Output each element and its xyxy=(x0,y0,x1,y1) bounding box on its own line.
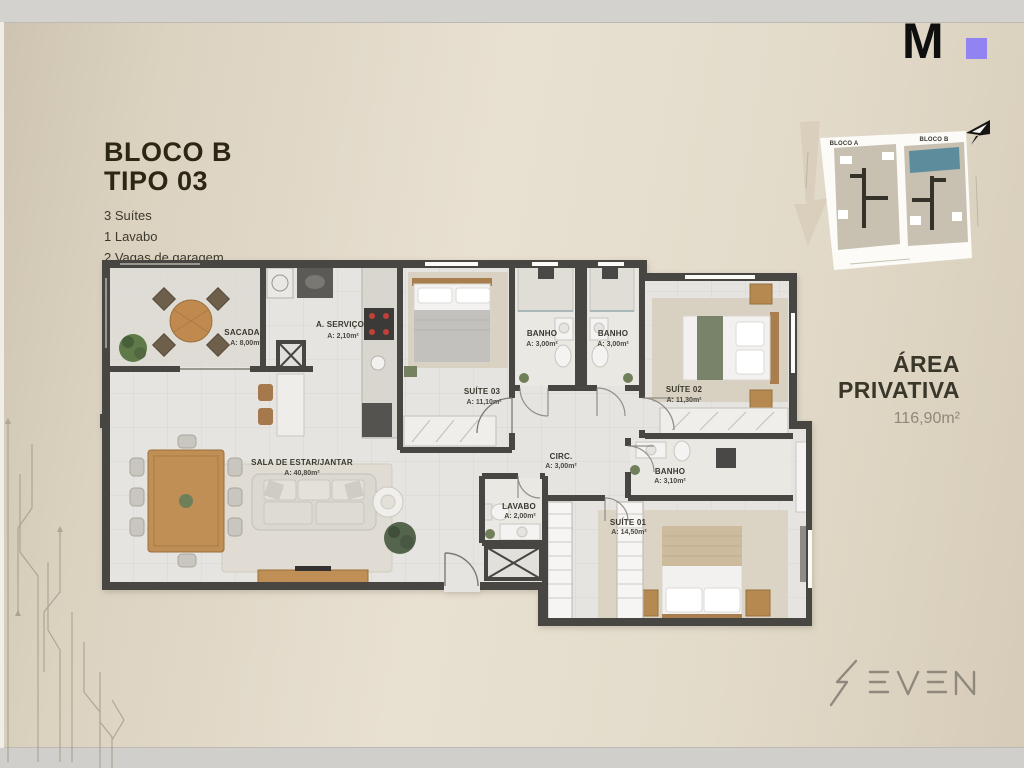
shaft-2 xyxy=(486,547,541,579)
room-area-sala: A: 40,80m² xyxy=(284,470,320,477)
suite03-pouf xyxy=(404,366,417,377)
floor-plan: SACADA A: 8,00m² A. SERVIÇO A: 2,10m² SU… xyxy=(100,258,812,632)
room-label-servico: A. SERVIÇO xyxy=(316,320,364,329)
floor-plant xyxy=(384,522,416,554)
suite01-nightstand xyxy=(746,590,770,616)
island-stool xyxy=(258,384,273,401)
table-centerpiece-plant xyxy=(179,494,193,508)
title-line-1: BLOCO B xyxy=(104,138,232,167)
room-label-banho2: BANHO xyxy=(598,329,628,338)
banho3-toilet xyxy=(674,441,690,461)
suite03-blanket xyxy=(414,310,490,362)
seven-logo xyxy=(822,656,992,712)
balcony-plant xyxy=(119,334,147,362)
room-area-circ: A: 3,00m² xyxy=(545,463,577,470)
highlighted-unit xyxy=(909,147,960,173)
bloco-b-footprint xyxy=(904,142,968,246)
suite02-nightstand xyxy=(750,284,772,304)
service-area xyxy=(267,268,333,298)
room-label-sacada: SACADA xyxy=(224,328,259,337)
room-area-banho3: A: 3,10m² xyxy=(654,478,686,485)
bloco-a-footprint xyxy=(834,144,900,250)
banho3-shower-fixture xyxy=(716,448,736,468)
room-label-suite01: SUÍTE 01 xyxy=(610,518,647,527)
m-logo: M xyxy=(902,16,1002,76)
banho2-toilet xyxy=(592,345,608,367)
island-stool xyxy=(258,408,273,425)
suite03-wardrobe xyxy=(404,416,496,446)
room-label-circ: CIRC. xyxy=(550,452,573,461)
room-label-lavabo: LAVABO xyxy=(502,502,536,511)
washing-machine xyxy=(267,268,293,298)
room-area-banho1: A: 3,00m² xyxy=(526,341,558,348)
suite02-wardrobe xyxy=(660,408,788,434)
room-area-banho2: A: 3,00m² xyxy=(597,341,629,348)
bloco-b-label: BLOCO B xyxy=(919,137,949,143)
bottom-gray-bar xyxy=(0,747,1024,768)
tv-console xyxy=(258,570,368,584)
header: BLOCO B TIPO 03 3 Suítes 1 Lavabo 2 Vaga… xyxy=(104,138,232,269)
room-label-suite03: SUÍTE 03 xyxy=(464,387,501,396)
room-area-sacada: A: 8,00m² xyxy=(230,340,262,347)
kitchen-cabinet xyxy=(362,403,392,437)
top-gray-bar xyxy=(0,0,1024,23)
tv xyxy=(295,566,331,571)
room-label-sala: SALA DE ESTAR/JANTAR xyxy=(251,458,353,467)
m-logo-letter: M xyxy=(902,13,941,69)
sofa xyxy=(252,474,376,530)
seven-letter-s-bolt xyxy=(831,661,856,705)
room-label-banho3: BANHO xyxy=(655,467,685,476)
kitchen-island xyxy=(277,374,304,436)
plan-title: BLOCO B TIPO 03 xyxy=(104,138,232,196)
room-area-suite02: A: 11,30m² xyxy=(666,397,702,404)
room-area-lavabo: A: 2,00m² xyxy=(504,513,536,520)
suite02-headboard xyxy=(770,312,779,384)
suite02-green-runner xyxy=(697,316,723,380)
spec-item-suites: 3 Suítes xyxy=(104,206,232,227)
bloco-a-label: BLOCO A xyxy=(830,141,859,147)
suite03-furniture xyxy=(404,278,496,446)
kitchen-sink xyxy=(371,356,385,370)
room-area-suite03: A: 11,10m² xyxy=(466,399,502,406)
m-logo-purple-square xyxy=(966,38,987,59)
site-plan-inset: BLOCO A BLOCO B xyxy=(790,116,994,292)
title-line-2: TIPO 03 xyxy=(104,167,232,196)
banho1-toilet xyxy=(555,345,571,367)
room-label-banho1: BANHO xyxy=(527,329,557,338)
room-area-servico: A: 2,10m² xyxy=(327,333,359,340)
stove xyxy=(364,308,394,340)
presentation-slide: { "header": { "title_line1": "BLOCO B", … xyxy=(0,0,1024,768)
spec-item-lavabo: 1 Lavabo xyxy=(104,227,232,248)
room-label-suite02: SUÍTE 02 xyxy=(666,385,703,394)
room-area-suite01: A: 14,50m² xyxy=(611,529,647,536)
cursor-arrow xyxy=(966,120,990,145)
shaft-1 xyxy=(278,342,304,369)
